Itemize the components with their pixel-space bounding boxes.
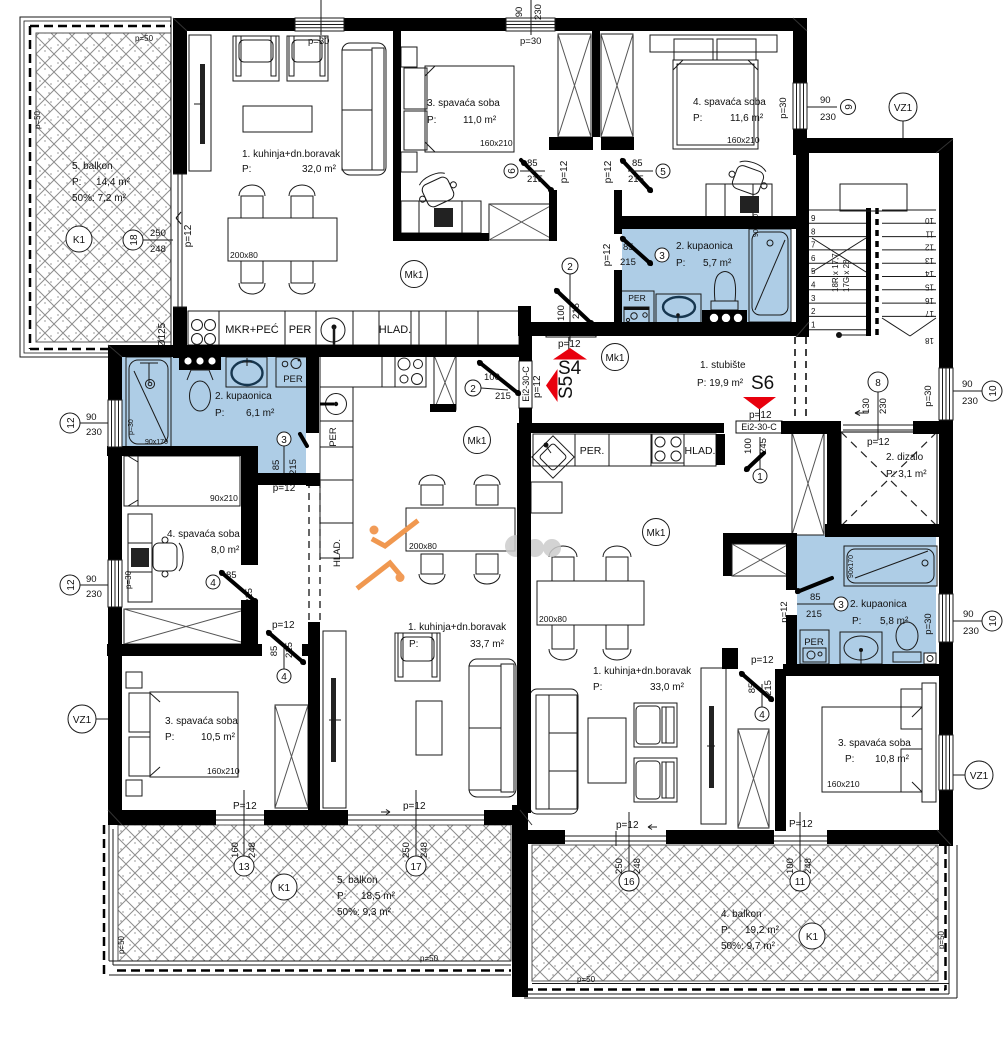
svg-text:250: 250: [150, 228, 166, 239]
svg-text:p=12: p=12: [559, 160, 570, 183]
svg-text:5: 5: [811, 267, 816, 276]
svg-text:12: 12: [66, 417, 77, 429]
svg-text:P: 19,9 m²: P: 19,9 m²: [697, 378, 744, 389]
svg-text:90: 90: [86, 574, 97, 585]
svg-text:3. spavaća soba: 3. spavaća soba: [165, 716, 238, 727]
svg-text:Mk1: Mk1: [647, 528, 666, 539]
svg-text:11: 11: [925, 229, 934, 238]
svg-text:15: 15: [925, 283, 934, 292]
svg-text:3: 3: [659, 251, 665, 262]
svg-text:P:: P:: [215, 408, 224, 419]
svg-text:3. spavaća soba: 3. spavaća soba: [427, 98, 500, 109]
svg-text:230: 230: [962, 396, 978, 407]
svg-text:p=50: p=50: [420, 954, 439, 963]
svg-text:2. kupaonica: 2. kupaonica: [676, 241, 733, 252]
svg-text:3: 3: [811, 294, 816, 303]
svg-text:7: 7: [811, 241, 816, 250]
svg-text:Ø125: Ø125: [157, 322, 168, 347]
svg-text:1: 1: [757, 472, 763, 483]
svg-text:3: 3: [281, 435, 287, 446]
svg-text:PER: PER: [804, 637, 824, 648]
svg-text:248: 248: [247, 842, 258, 858]
svg-text:85: 85: [271, 460, 282, 471]
svg-text:85: 85: [269, 646, 280, 657]
svg-text:248: 248: [803, 858, 814, 874]
svg-text:p=50: p=50: [577, 975, 596, 984]
svg-text:50%: 9,3 m²: 50%: 9,3 m²: [337, 907, 392, 918]
svg-text:5. balkon: 5. balkon: [337, 875, 378, 886]
svg-text:P:: P:: [676, 258, 685, 269]
svg-text:16: 16: [925, 296, 934, 305]
svg-text:10,8 m²: 10,8 m²: [875, 754, 910, 765]
svg-text:p=12: p=12: [751, 655, 774, 666]
svg-text:230: 230: [878, 398, 889, 414]
svg-text:90: 90: [514, 7, 525, 18]
svg-text:230: 230: [86, 589, 102, 600]
svg-text:90: 90: [963, 609, 974, 620]
svg-text:VZ1: VZ1: [894, 103, 913, 114]
svg-text:HLAD.: HLAD.: [379, 324, 411, 336]
svg-text:90x170: 90x170: [145, 439, 168, 446]
svg-text:160x210: 160x210: [480, 138, 513, 148]
svg-text:10: 10: [925, 216, 934, 225]
svg-text:248: 248: [150, 244, 166, 255]
svg-text:Mk1: Mk1: [405, 270, 424, 281]
svg-text:100: 100: [743, 438, 754, 454]
svg-text:P:: P:: [427, 115, 436, 126]
svg-text:P:: P:: [72, 177, 81, 188]
svg-text:6: 6: [507, 168, 518, 174]
svg-text:160x210: 160x210: [827, 779, 860, 789]
svg-text:6: 6: [811, 254, 816, 263]
svg-text:10: 10: [988, 385, 999, 397]
svg-text:P:: P:: [852, 616, 861, 627]
svg-text:Ei2-30-C: Ei2-30-C: [521, 366, 531, 402]
svg-text:p=12: p=12: [183, 224, 194, 247]
svg-text:160: 160: [230, 842, 241, 858]
svg-text:215: 215: [620, 257, 636, 268]
svg-text:p=30: p=30: [923, 613, 934, 634]
svg-text:3. spavaća soba: 3. spavaća soba: [838, 738, 911, 749]
svg-text:P:: P:: [593, 682, 602, 693]
svg-text:90: 90: [86, 412, 97, 423]
svg-text:1: 1: [811, 320, 816, 329]
svg-text:4. spavaća soba: 4. spavaća soba: [167, 529, 240, 540]
svg-text:50%: 7,2 m²: 50%: 7,2 m²: [72, 193, 127, 204]
svg-text:215: 215: [527, 174, 543, 185]
svg-text:17G x 28: 17G x 28: [842, 259, 851, 292]
svg-text:p=50: p=50: [33, 110, 42, 129]
svg-text:11,0 m²: 11,0 m²: [463, 115, 497, 126]
svg-text:250: 250: [401, 842, 412, 858]
svg-text:33,7 m²: 33,7 m²: [470, 639, 505, 650]
svg-text:4: 4: [281, 672, 287, 683]
svg-text:200x80: 200x80: [230, 250, 258, 260]
svg-text:215: 215: [628, 174, 644, 185]
svg-text:p=12: p=12: [603, 160, 614, 183]
svg-text:4: 4: [811, 281, 816, 290]
svg-text:248: 248: [419, 842, 430, 858]
svg-text:12: 12: [66, 579, 77, 591]
svg-text:P: 3,1 m²: P: 3,1 m²: [886, 469, 927, 480]
svg-text:1. stubište: 1. stubište: [700, 360, 746, 371]
svg-text:10,5 m²: 10,5 m²: [201, 732, 236, 743]
svg-text:VZ1: VZ1: [73, 715, 92, 726]
svg-text:p=30: p=30: [923, 385, 934, 406]
svg-text:12: 12: [925, 243, 934, 252]
svg-text:11,6 m²: 11,6 m²: [730, 113, 764, 124]
svg-text:P:: P:: [693, 113, 702, 124]
svg-text:160x210: 160x210: [207, 766, 240, 776]
svg-text:8,0 m²: 8,0 m²: [211, 545, 240, 556]
svg-text:2. kupaonica: 2. kupaonica: [850, 599, 907, 610]
svg-text:9: 9: [844, 104, 855, 110]
svg-text:215: 215: [806, 609, 822, 620]
svg-text:4: 4: [759, 710, 765, 721]
svg-text:90x170: 90x170: [848, 555, 855, 578]
svg-text:4. spavaća soba: 4. spavaća soba: [693, 97, 766, 108]
svg-text:K1: K1: [278, 883, 291, 894]
svg-text:18: 18: [925, 336, 934, 345]
svg-text:p=50: p=50: [937, 930, 946, 949]
svg-text:P:: P:: [845, 754, 854, 765]
svg-text:200x80: 200x80: [409, 541, 437, 551]
svg-text:S5: S5: [556, 376, 577, 399]
svg-text:p=12: p=12: [602, 243, 613, 266]
svg-text:S6: S6: [751, 373, 774, 394]
svg-text:18,5 m²: 18,5 m²: [361, 891, 396, 902]
svg-text:PER.: PER.: [580, 445, 605, 457]
svg-text:9: 9: [811, 214, 816, 223]
svg-text:Mk1: Mk1: [468, 436, 487, 447]
svg-text:P=12: P=12: [233, 801, 257, 812]
svg-text:2. dizalo: 2. dizalo: [886, 452, 924, 463]
svg-text:33,0 m²: 33,0 m²: [650, 682, 685, 693]
svg-text:4. balkon: 4. balkon: [721, 909, 762, 920]
svg-text:1. kuhinja+dn.boravak: 1. kuhinja+dn.boravak: [593, 666, 692, 677]
svg-text:p=30: p=30: [520, 36, 541, 47]
svg-text:200x80: 200x80: [539, 614, 567, 624]
svg-text:2. kupaonica: 2. kupaonica: [215, 391, 272, 402]
svg-text:100: 100: [785, 858, 796, 874]
svg-text:P:: P:: [165, 732, 174, 743]
svg-text:17: 17: [925, 309, 934, 318]
svg-text:13: 13: [925, 256, 934, 265]
svg-text:HLAD.: HLAD.: [332, 539, 343, 567]
svg-text:8: 8: [875, 378, 881, 389]
svg-text:p=30: p=30: [308, 36, 329, 47]
svg-text:230: 230: [963, 626, 979, 637]
svg-text:P=12: P=12: [789, 819, 813, 830]
svg-text:p=12: p=12: [558, 339, 581, 350]
svg-text:p=12: p=12: [272, 620, 295, 631]
svg-text:16: 16: [623, 877, 635, 888]
svg-text:6,1 m²: 6,1 m²: [246, 408, 275, 419]
svg-text:5,7 m²: 5,7 m²: [703, 258, 732, 269]
svg-text:P:: P:: [721, 925, 730, 936]
svg-text:85: 85: [527, 158, 538, 169]
svg-text:85: 85: [810, 592, 821, 603]
svg-text:90x210: 90x210: [210, 493, 238, 503]
svg-text:230: 230: [86, 427, 102, 438]
svg-text:215: 215: [288, 459, 299, 475]
svg-text:K1: K1: [806, 932, 819, 943]
svg-text:PER: PER: [283, 374, 303, 385]
svg-text:p=12: p=12: [403, 801, 426, 812]
svg-text:p=30: p=30: [778, 97, 789, 118]
svg-text:130: 130: [861, 398, 872, 414]
svg-text:PER: PER: [328, 427, 339, 447]
svg-text:p=12: p=12: [532, 375, 543, 398]
svg-text:85: 85: [632, 158, 643, 169]
svg-text:10: 10: [988, 615, 999, 627]
svg-text:230: 230: [533, 4, 544, 20]
svg-text:PER: PER: [289, 324, 312, 336]
svg-text:17: 17: [410, 862, 422, 873]
svg-text:18: 18: [129, 234, 140, 246]
svg-text:1. kuhinja+dn.boravak: 1. kuhinja+dn.boravak: [242, 149, 341, 160]
svg-text:p=30: p=30: [128, 419, 135, 435]
svg-text:50%: 9,7 m²: 50%: 9,7 m²: [721, 941, 776, 952]
svg-text:MKR+PEĆ: MKR+PEĆ: [225, 323, 279, 336]
svg-text:Ei2-30-C: Ei2-30-C: [741, 422, 777, 432]
svg-text:2: 2: [811, 307, 816, 316]
svg-text:160x210: 160x210: [727, 135, 760, 145]
svg-text:5: 5: [660, 167, 666, 178]
svg-text:5,8 m²: 5,8 m²: [880, 616, 909, 627]
svg-text:230: 230: [820, 112, 836, 123]
svg-text:HLAD.: HLAD.: [685, 445, 716, 457]
svg-text:1. kuhinja+dn.boravak: 1. kuhinja+dn.boravak: [408, 622, 507, 633]
svg-text:P:: P:: [242, 164, 251, 175]
svg-text:PER: PER: [628, 293, 645, 303]
svg-text:215: 215: [495, 391, 511, 402]
svg-text:Mk1: Mk1: [606, 353, 625, 364]
svg-text:13: 13: [238, 862, 250, 873]
svg-text:11: 11: [795, 877, 806, 888]
svg-text:19,2 m²: 19,2 m²: [745, 925, 780, 936]
svg-text:8: 8: [811, 227, 816, 236]
svg-text:32,0 m²: 32,0 m²: [302, 164, 337, 175]
svg-text:2: 2: [567, 262, 573, 273]
svg-text:18R x 17,7: 18R x 17,7: [831, 253, 840, 292]
svg-text:p=50: p=50: [117, 935, 126, 954]
svg-text:250: 250: [614, 858, 625, 874]
svg-text:p=12: p=12: [749, 410, 772, 421]
svg-text:p=50: p=50: [135, 34, 154, 43]
svg-text:p=12: p=12: [616, 820, 639, 831]
svg-text:5. balkon: 5. balkon: [72, 161, 113, 172]
svg-text:P:: P:: [409, 639, 418, 650]
svg-text:VZ1: VZ1: [970, 771, 989, 782]
svg-text:2: 2: [470, 384, 476, 395]
svg-text:14: 14: [925, 269, 934, 278]
svg-text:3: 3: [838, 600, 844, 611]
svg-text:P:: P:: [337, 891, 346, 902]
svg-text:90: 90: [962, 379, 973, 390]
svg-text:4: 4: [210, 578, 216, 589]
svg-text:100: 100: [556, 305, 567, 321]
svg-text:90: 90: [820, 95, 831, 106]
svg-text:248: 248: [632, 858, 643, 874]
svg-text:p=30: p=30: [124, 570, 133, 589]
svg-text:14,4 m²: 14,4 m²: [96, 177, 131, 188]
svg-text:K1: K1: [73, 235, 86, 246]
